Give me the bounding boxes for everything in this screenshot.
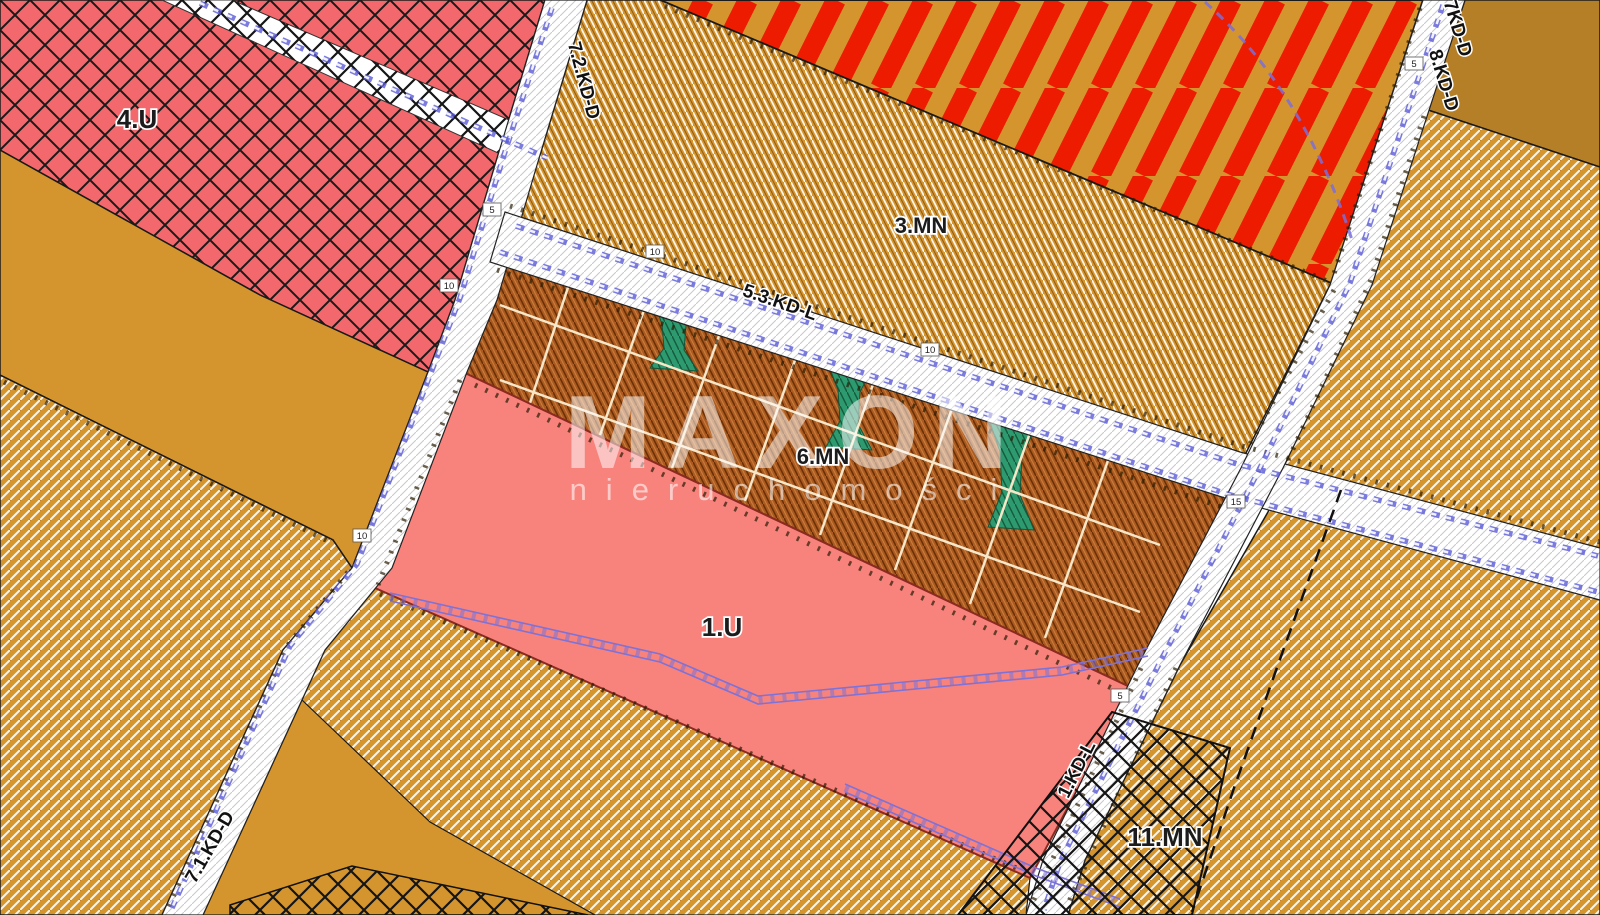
- zone-label-6mn: 6.MN: [797, 444, 850, 469]
- dim-marker: 5: [1411, 59, 1416, 70]
- dim-marker: 15: [1231, 497, 1242, 508]
- dim-marker: 5: [489, 205, 494, 216]
- zone-label-11mn: 11.MN: [1127, 822, 1202, 852]
- dim-marker: 10: [925, 345, 936, 356]
- zone-label-1u: 1.U: [702, 612, 742, 642]
- dim-marker: 5: [1117, 691, 1122, 702]
- watermark-subtitle: nieruchomości: [570, 472, 1017, 507]
- watermark: MAXON nieruchomości: [564, 375, 1021, 507]
- dim-marker: 10: [650, 247, 661, 258]
- dim-marker: 10: [357, 531, 368, 542]
- zoning-map-canvas: MAXON nieruchomości 4.U 3.MN 6.MN 1.U 11…: [0, 0, 1600, 915]
- zoning-map: MAXON nieruchomości 4.U 3.MN 6.MN 1.U 11…: [0, 0, 1600, 915]
- zone-label-3mn: 3.MN: [895, 213, 948, 238]
- zone-label-4u: 4.U: [117, 104, 157, 134]
- dim-marker: 10: [444, 281, 455, 292]
